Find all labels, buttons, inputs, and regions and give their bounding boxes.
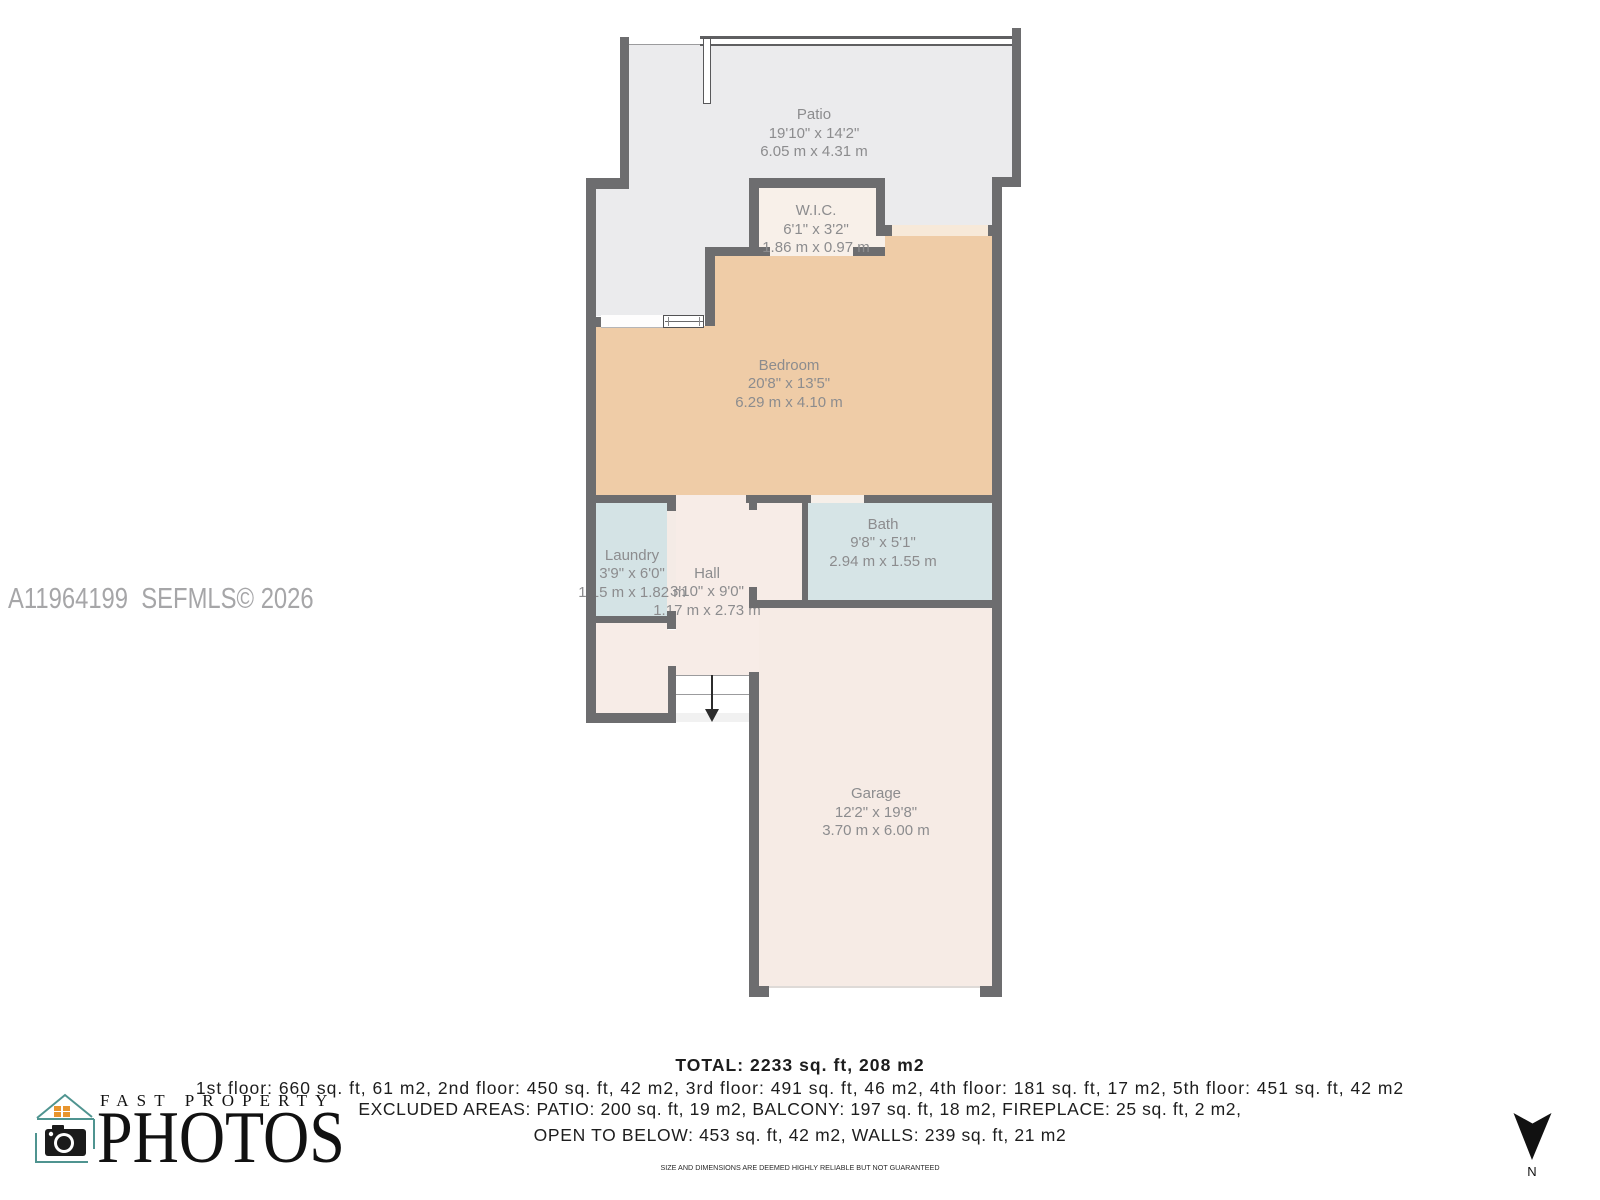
svg-text:N: N <box>1527 1164 1536 1179</box>
